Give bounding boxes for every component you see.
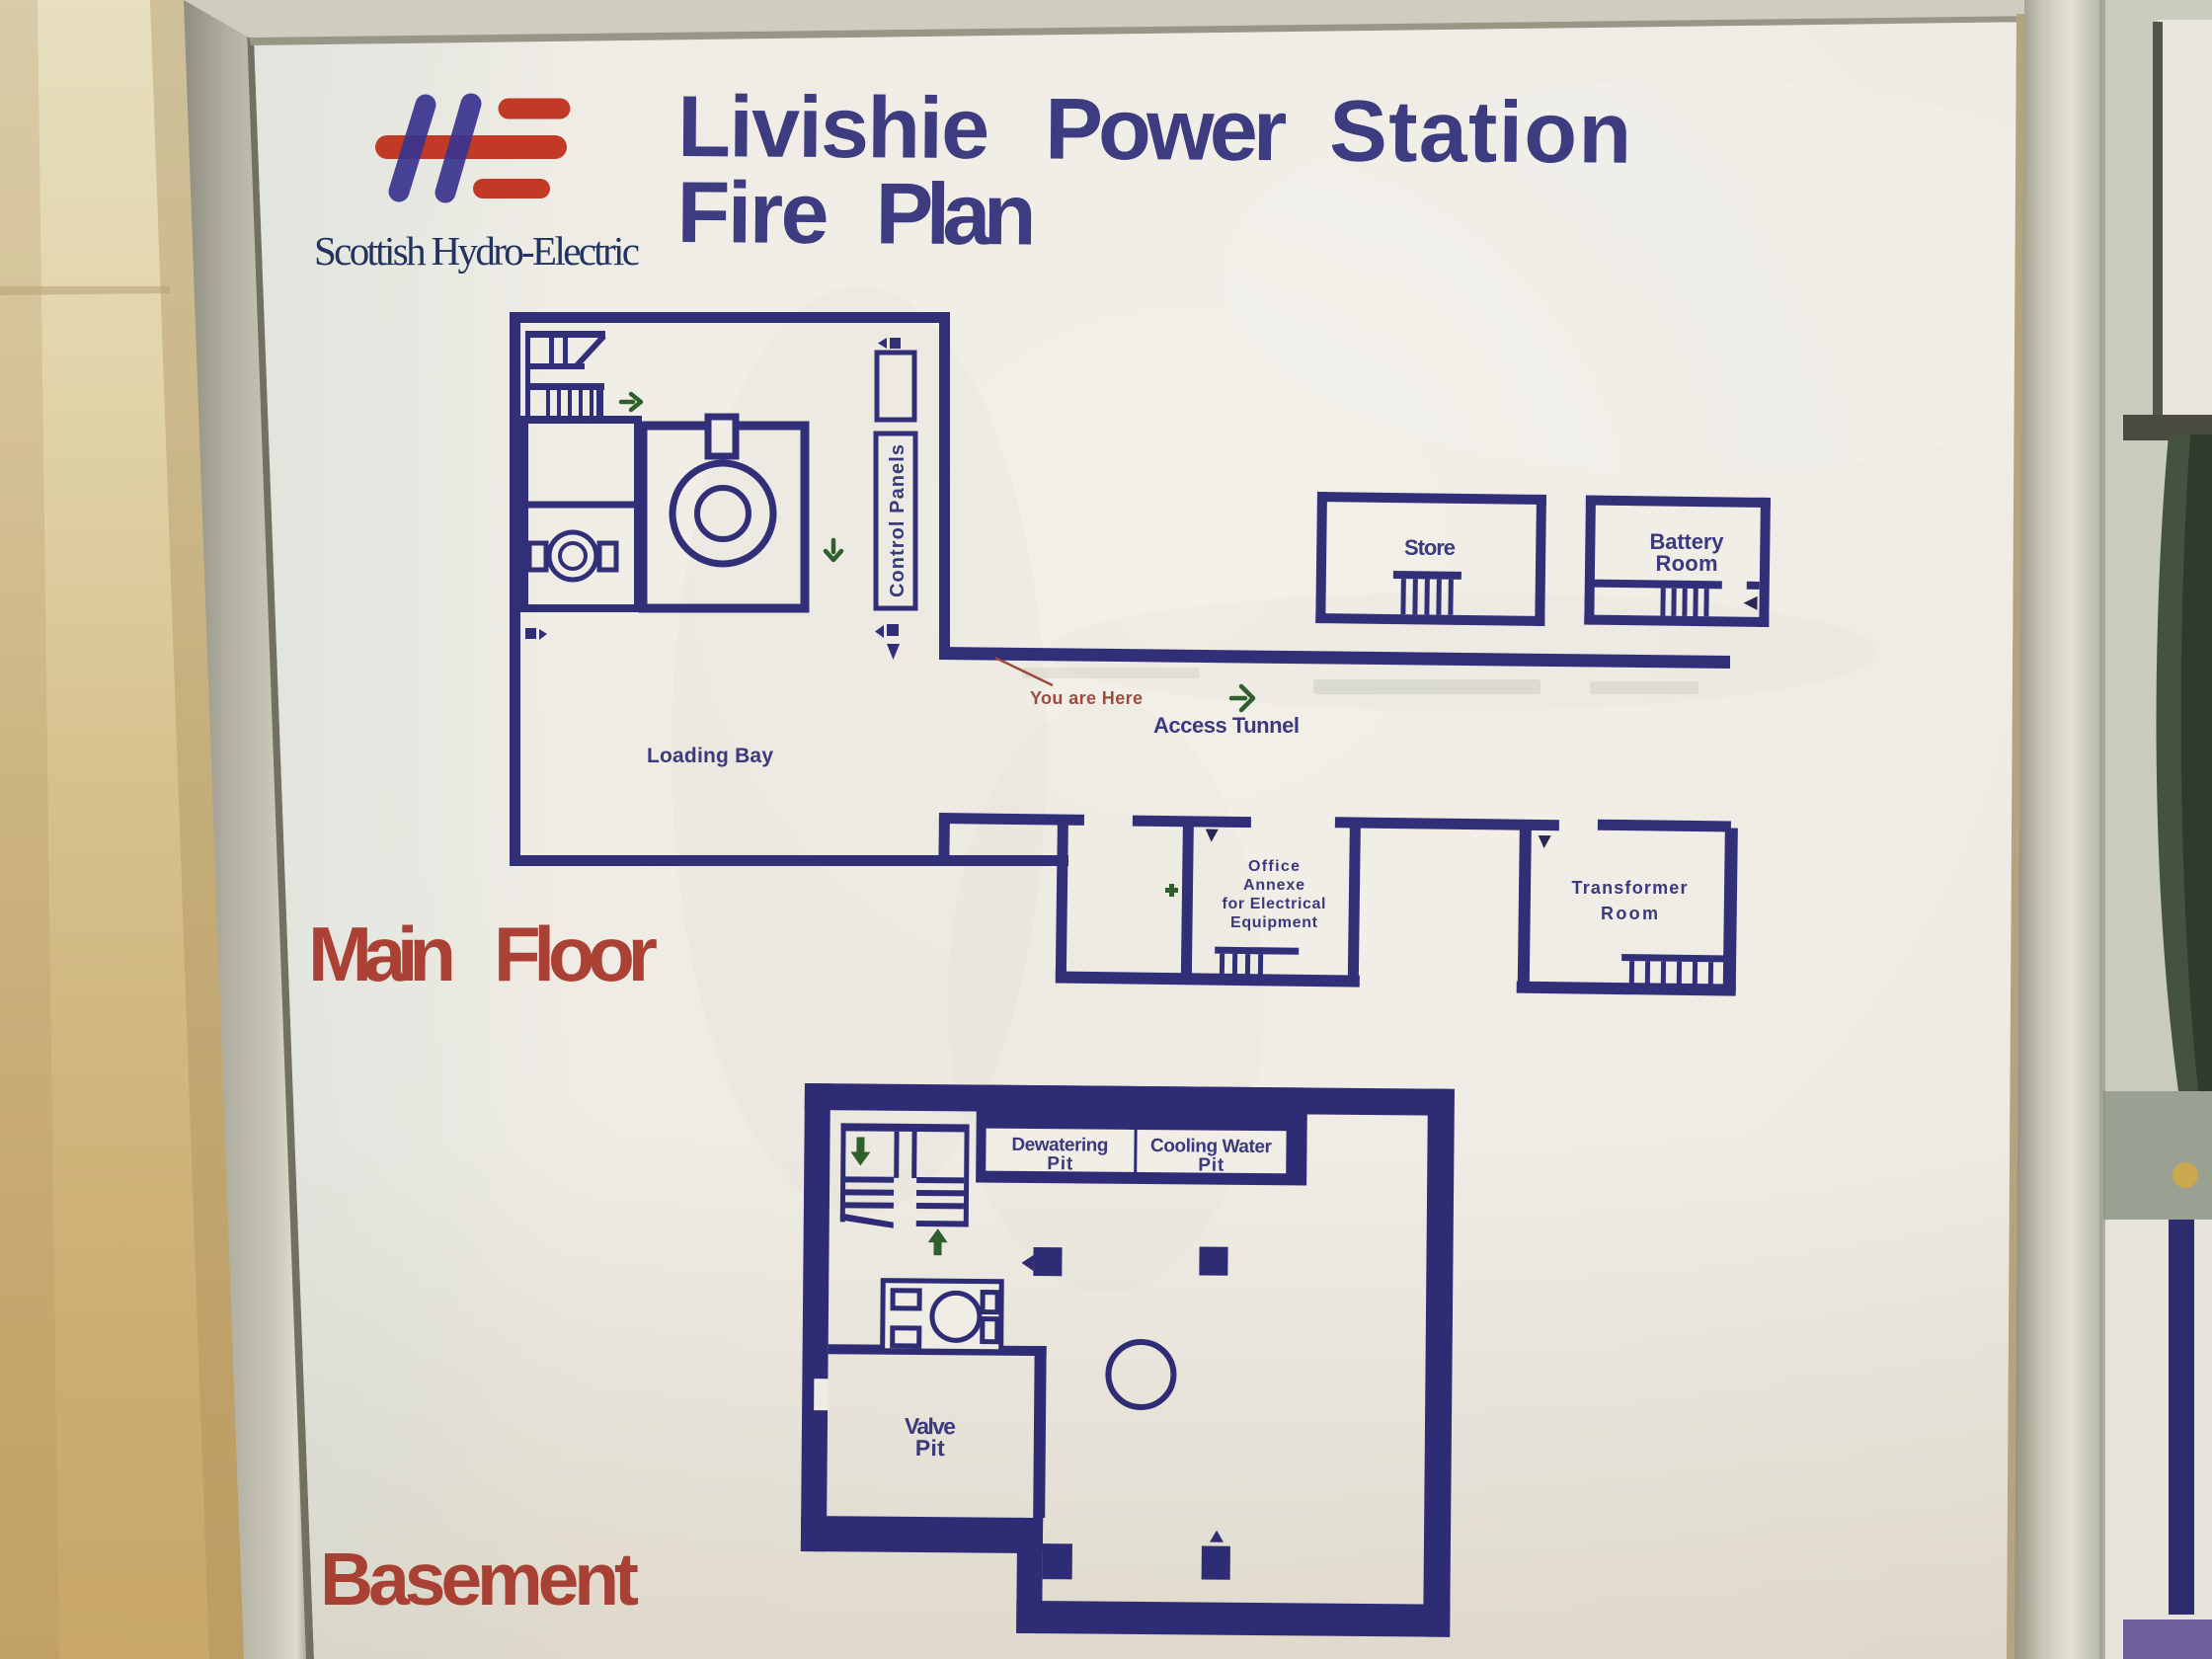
svg-text:Transformer: Transformer xyxy=(1572,878,1688,898)
svg-text:Floor: Floor xyxy=(494,910,658,997)
svg-text:Power: Power xyxy=(1045,80,1288,180)
svg-text:Main: Main xyxy=(308,910,456,997)
svg-text:Pit: Pit xyxy=(1198,1154,1224,1175)
svg-text:Plan: Plan xyxy=(875,164,1037,263)
svg-text:Control Panels: Control Panels xyxy=(887,444,908,597)
svg-text:Station: Station xyxy=(1329,82,1632,182)
svg-text:Livishie: Livishie xyxy=(677,77,990,177)
svg-text:Store: Store xyxy=(1404,535,1456,560)
svg-text:Scottish Hydro-Electric: Scottish Hydro-Electric xyxy=(314,228,640,274)
svg-text:Pit: Pit xyxy=(915,1435,946,1461)
svg-text:Annexe: Annexe xyxy=(1243,877,1304,894)
svg-text:Loading Bay: Loading Bay xyxy=(647,745,773,767)
svg-text:Room: Room xyxy=(1601,904,1658,923)
svg-text:Room: Room xyxy=(1656,551,1718,576)
svg-text:Fire: Fire xyxy=(676,163,829,262)
svg-text:You are Here: You are Here xyxy=(1030,688,1143,708)
svg-text:Pit: Pit xyxy=(1047,1153,1073,1174)
svg-text:Basement: Basement xyxy=(320,1538,639,1620)
svg-text:Access Tunnel: Access Tunnel xyxy=(1153,713,1300,738)
svg-text:Equipment: Equipment xyxy=(1230,914,1318,931)
svg-text:for Electrical: for Electrical xyxy=(1223,896,1326,912)
